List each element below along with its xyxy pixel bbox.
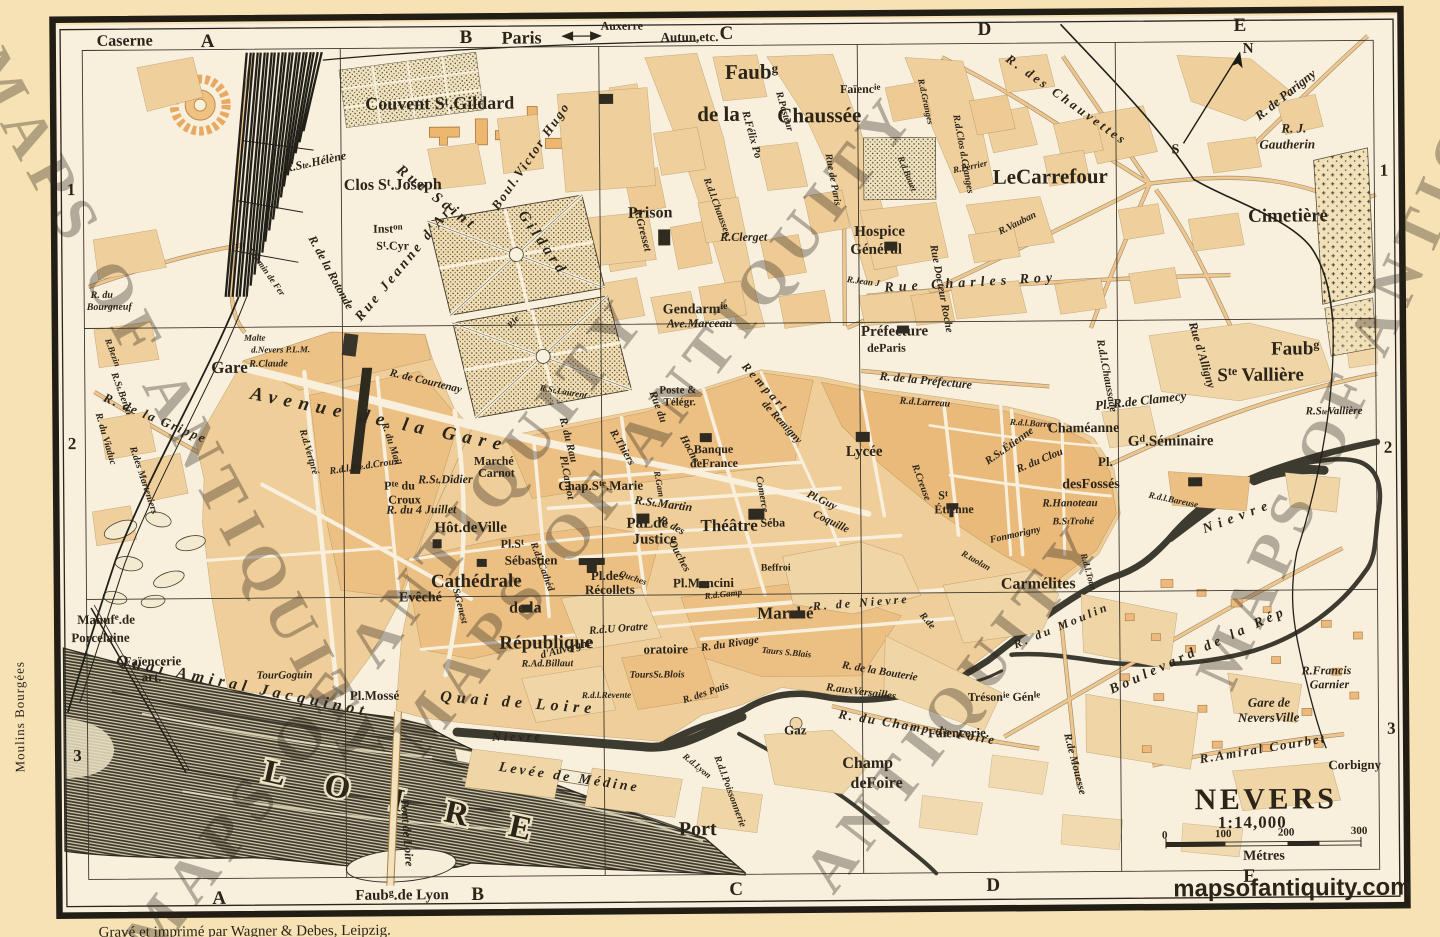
svg-text:R.Claude: R.Claude <box>248 358 288 369</box>
svg-text:300: 300 <box>1351 825 1368 837</box>
svg-text:Faubg: Faubg <box>725 60 779 84</box>
svg-text:deParis: deParis <box>867 341 906 355</box>
svg-text:B: B <box>471 884 484 905</box>
svg-text:Auxerre: Auxerre <box>600 19 643 33</box>
svg-text:desFossés: desFossés <box>1062 477 1120 492</box>
svg-text:C: C <box>729 879 743 900</box>
svg-text:d.Nevers P.L.M.: d.Nevers P.L.M. <box>251 344 310 354</box>
svg-text:Préfecture: Préfecture <box>861 323 929 340</box>
svg-text:Corbigny: Corbigny <box>1328 757 1381 772</box>
svg-text:Moulins Bourgées: Moulins Bourgées <box>12 661 28 773</box>
svg-text:Gaz: Gaz <box>784 722 807 737</box>
svg-text:Paris: Paris <box>502 27 542 47</box>
svg-text:3: 3 <box>1387 719 1396 738</box>
svg-text:A: A <box>201 31 215 52</box>
svg-text:de la: de la <box>697 102 740 126</box>
svg-text:Autun,etc.: Autun,etc. <box>661 29 719 44</box>
svg-text:0: 0 <box>1162 829 1168 841</box>
svg-text:R. J.: R. J. <box>1280 120 1306 135</box>
svg-text:Port: Port <box>679 818 717 840</box>
svg-text:Banque: Banque <box>694 442 734 456</box>
svg-text:Gare: Gare <box>211 358 248 377</box>
svg-text:Pl.: Pl. <box>1098 454 1113 469</box>
svg-text:N: N <box>1243 41 1254 57</box>
svg-text:D: D <box>986 875 1000 896</box>
svg-text:2: 2 <box>1384 438 1393 457</box>
svg-text:B: B <box>460 27 473 48</box>
svg-text:R.Hanoteau: R.Hanoteau <box>1041 497 1097 509</box>
svg-text:E: E <box>1233 15 1246 36</box>
svg-text:Caserne: Caserne <box>97 32 153 49</box>
svg-text:Nievre: Nievre <box>491 729 543 743</box>
svg-text:Porcelaine: Porcelaine <box>71 630 130 645</box>
svg-text:NEVERS: NEVERS <box>1195 782 1338 816</box>
svg-text:200: 200 <box>1278 826 1295 838</box>
svg-text:D: D <box>978 19 992 40</box>
svg-text:Hospice: Hospice <box>854 224 905 240</box>
svg-text:Gare de: Gare de <box>1248 695 1291 710</box>
svg-text:R.Ad.Billaut: R.Ad.Billaut <box>521 658 575 669</box>
svg-text:2: 2 <box>68 434 77 453</box>
svg-text:100: 100 <box>1215 828 1232 840</box>
svg-text:oratoire: oratoire <box>643 641 688 656</box>
svg-text:Malte: Malte <box>243 333 266 343</box>
svg-text:Pte du: Pte du <box>384 478 415 492</box>
svg-text:S: S <box>1171 142 1179 157</box>
svg-text:Croux: Croux <box>388 492 421 506</box>
svg-text:Chaméanne: Chaméanne <box>1048 421 1120 437</box>
svg-text:deFrance: deFrance <box>690 456 739 470</box>
svg-text:Beffroi: Beffroi <box>761 562 791 573</box>
svg-text:NeversVille: NeversVille <box>1237 709 1300 724</box>
svg-text:R.Francis: R.Francis <box>1301 663 1352 677</box>
svg-text:LeCarrefour: LeCarrefour <box>993 164 1108 189</box>
svg-text:1: 1 <box>1380 161 1389 180</box>
svg-text:ToursSt.Blois: ToursSt.Blois <box>630 669 685 680</box>
svg-text:3: 3 <box>73 746 82 765</box>
svg-text:Gautherin: Gautherin <box>1259 136 1315 151</box>
svg-text:Couvent St.Gildard: Couvent St.Gildard <box>365 93 514 114</box>
svg-text:R.d.l.Revente: R.d.l.Revente <box>581 690 631 700</box>
svg-text:Faubg.de Lyon: Faubg.de Lyon <box>355 887 449 904</box>
svg-text:Faubg: Faubg <box>1271 337 1319 359</box>
svg-text:Lycée: Lycée <box>846 444 883 460</box>
svg-text:Cimetière: Cimetière <box>1248 205 1328 227</box>
svg-text:Marché: Marché <box>757 603 814 622</box>
svg-text:Garnier: Garnier <box>1310 677 1350 691</box>
svg-text:Métres: Métres <box>1243 849 1285 864</box>
svg-text:Récollets: Récollets <box>585 582 635 597</box>
svg-text:Manufe.de: Manufe.de <box>77 612 135 627</box>
svg-text:mapsofantiquity.com: mapsofantiquity.com <box>1173 874 1411 903</box>
svg-text:C: C <box>720 23 734 44</box>
